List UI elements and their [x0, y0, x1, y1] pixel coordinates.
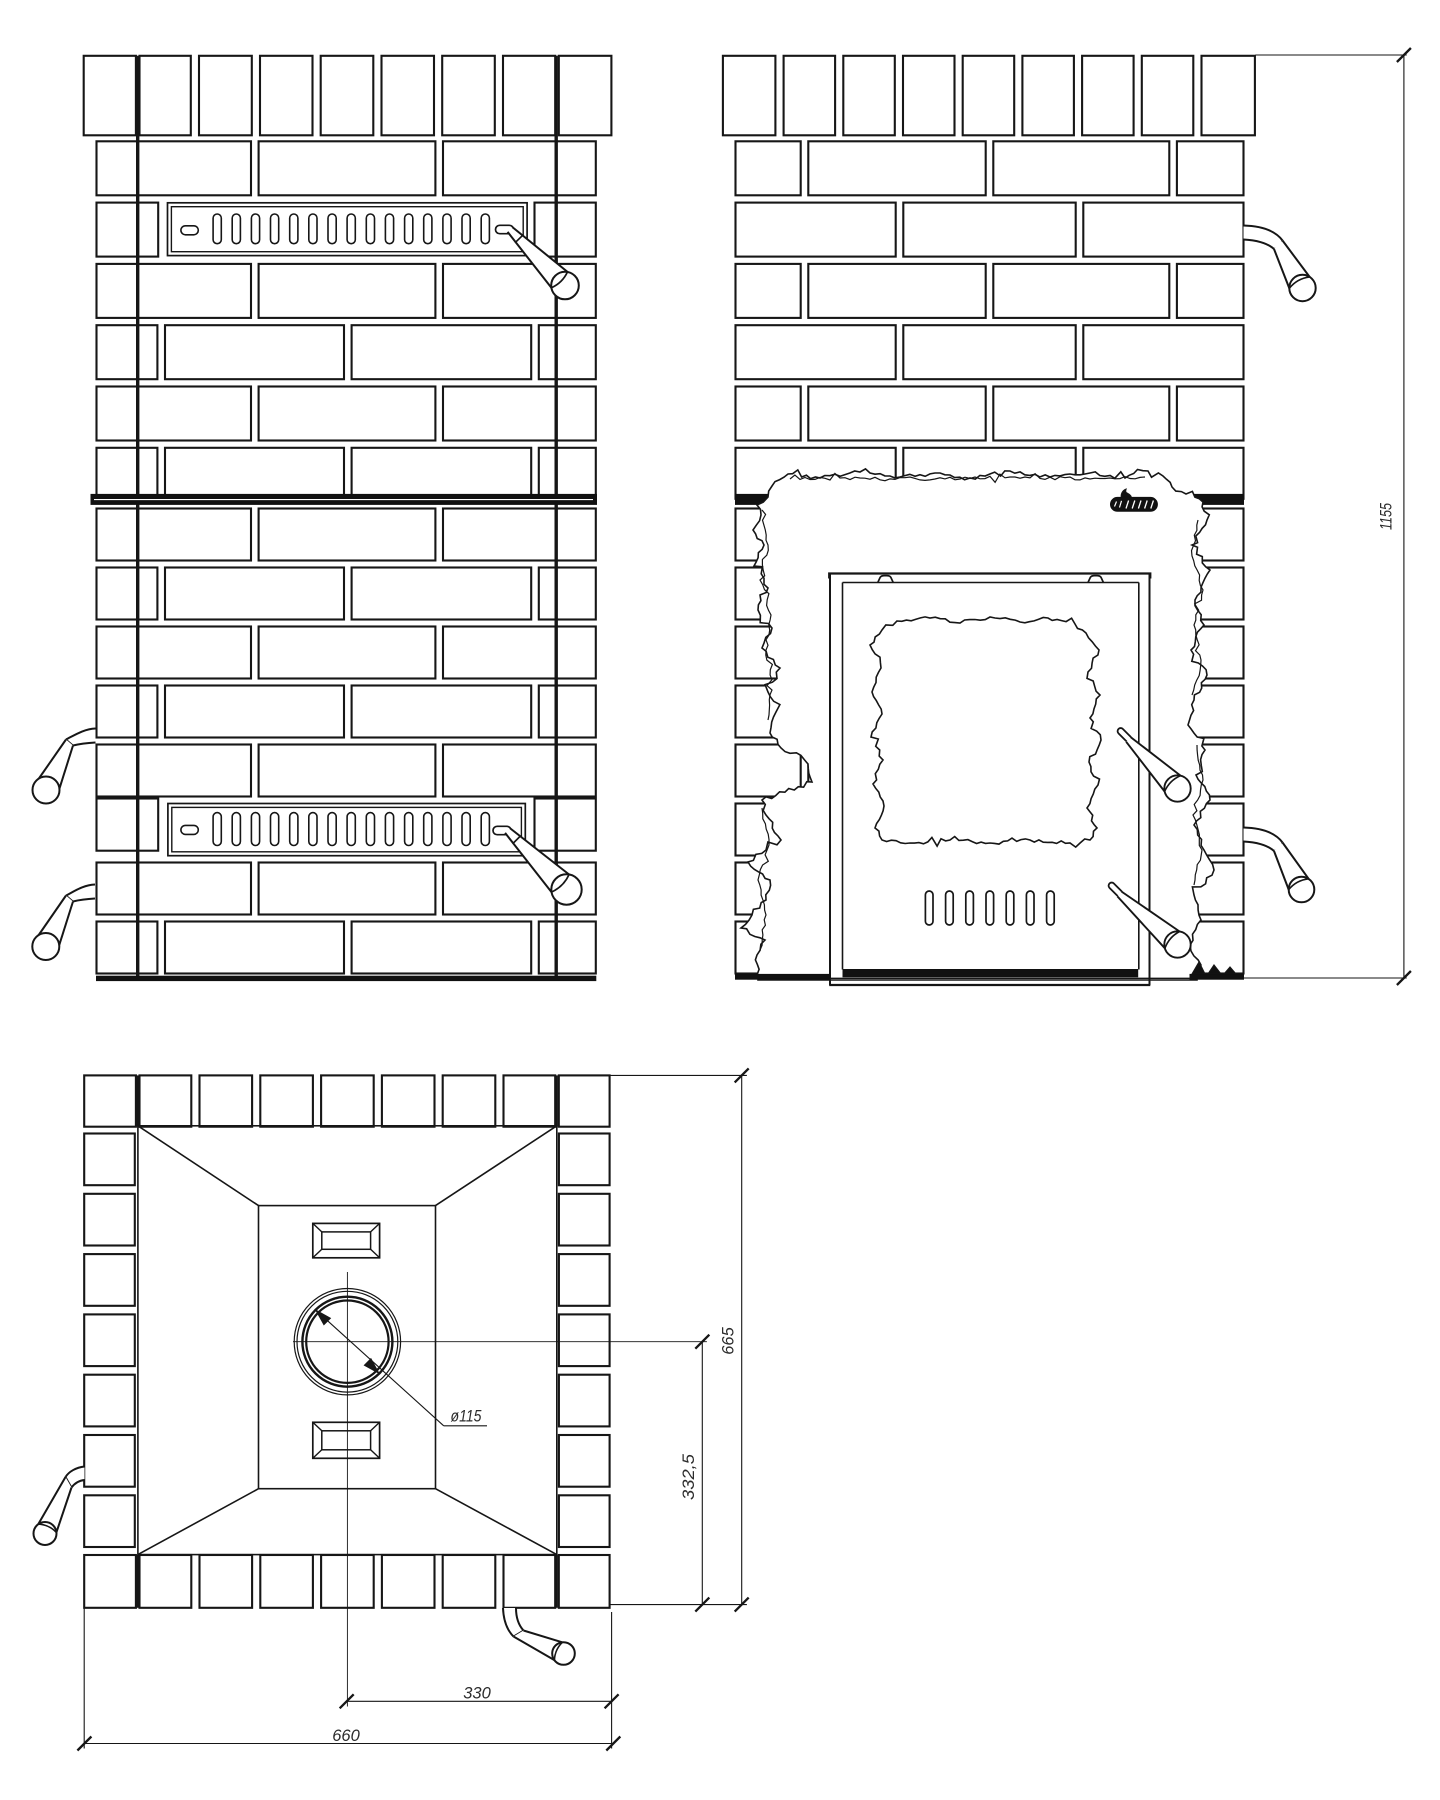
svg-text:330: 330: [463, 1685, 491, 1703]
svg-text:660: 660: [332, 1727, 360, 1745]
svg-text:ø115: ø115: [451, 1408, 483, 1426]
svg-text:1155: 1155: [1378, 502, 1396, 530]
svg-text:665: 665: [720, 1326, 738, 1354]
svg-text:332,5: 332,5: [680, 1453, 698, 1500]
